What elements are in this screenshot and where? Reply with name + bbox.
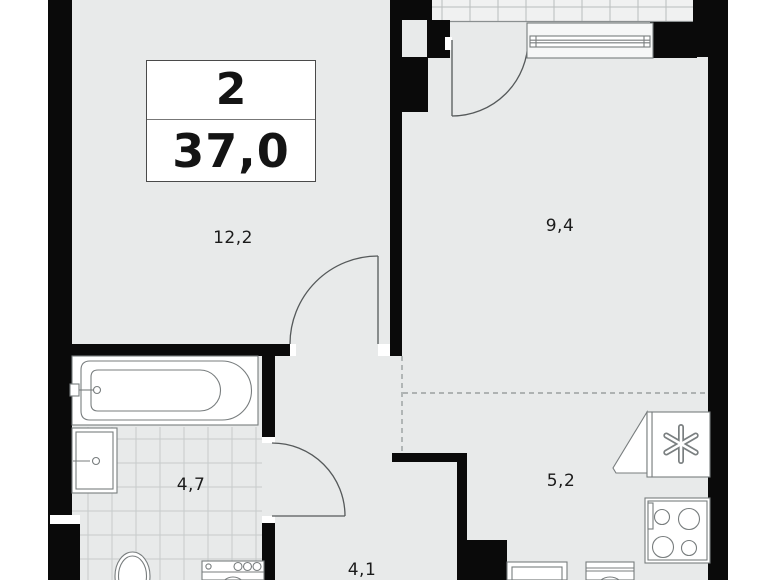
bathroom-sink (72, 428, 117, 493)
balcony (432, 0, 695, 22)
left-wall-step (72, 524, 80, 580)
bathroom-right-wall-upper (262, 356, 275, 437)
balcony-window (527, 23, 653, 58)
kitchen-sink (507, 562, 567, 580)
floor-plan: 2 37,0 12,2 9,4 4,7 5,2 4,1 (0, 0, 780, 580)
living-bathroom-wall (60, 344, 290, 356)
dishwasher (586, 562, 634, 580)
bathroom-area-label: 4,7 (177, 475, 206, 495)
right-wall-top-block (693, 0, 728, 57)
kitchen-partition-wall (457, 462, 467, 540)
center-divider-wall (390, 0, 402, 356)
washing-machine (202, 561, 264, 580)
right-exterior-wall (708, 57, 728, 580)
apartment-info-box: 2 37,0 (146, 60, 316, 182)
left-exterior-wall (48, 0, 72, 580)
total-area-label: 37,0 (147, 120, 315, 181)
bedroom-area-label: 9,4 (546, 216, 575, 236)
bathtub (70, 356, 258, 425)
hallway-area-label: 4,1 (348, 560, 377, 580)
kitchen-partition-bar (392, 453, 467, 462)
room-count-label: 2 (147, 61, 315, 120)
living-room-area-label: 12,2 (213, 228, 253, 248)
kitchen-partition-block (457, 540, 507, 580)
balcony-left-stub (390, 0, 432, 20)
kitchen-area-label: 5,2 (547, 471, 576, 491)
stove (645, 498, 710, 563)
balcony-window-side-wall (650, 22, 697, 58)
divider-shaft (390, 57, 428, 112)
floorplan-drawing (0, 0, 780, 580)
